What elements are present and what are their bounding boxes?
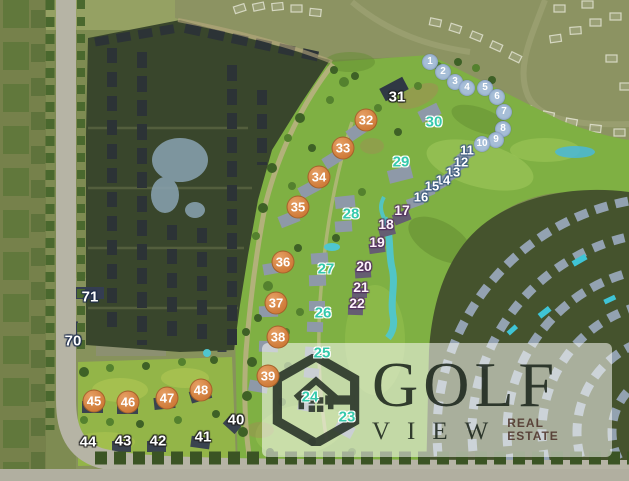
lot-marker-23[interactable]: 23: [339, 410, 356, 425]
lot-marker-19[interactable]: 19: [369, 235, 385, 249]
lot-marker-30[interactable]: 30: [426, 115, 443, 130]
lot-marker-7[interactable]: 7: [496, 104, 512, 120]
lot-marker-34[interactable]: 34: [308, 166, 331, 189]
lot-marker-70[interactable]: 70: [65, 334, 82, 349]
lot-marker-17[interactable]: 17: [394, 203, 410, 217]
lot-marker-21[interactable]: 21: [353, 280, 369, 294]
lot-marker-43[interactable]: 43: [115, 434, 132, 449]
lot-marker-40[interactable]: 40: [228, 413, 245, 428]
lot-marker-36[interactable]: 36: [272, 251, 295, 274]
lot-marker-39[interactable]: 39: [257, 365, 280, 388]
marker-layer: 1234567891011121314151617181920212223242…: [0, 0, 629, 481]
lot-marker-9[interactable]: 9: [488, 132, 504, 148]
lot-marker-29[interactable]: 29: [393, 155, 410, 170]
lot-marker-37[interactable]: 37: [265, 292, 288, 315]
lot-marker-25[interactable]: 25: [314, 346, 331, 361]
lot-marker-26[interactable]: 26: [315, 306, 332, 321]
lot-marker-10[interactable]: 10: [474, 136, 490, 152]
lot-marker-47[interactable]: 47: [156, 387, 179, 410]
lot-marker-18[interactable]: 18: [378, 217, 394, 231]
lot-marker-28[interactable]: 28: [343, 207, 360, 222]
lot-marker-41[interactable]: 41: [195, 430, 212, 445]
masterplan-map[interactable]: 1234567891011121314151617181920212223242…: [0, 0, 629, 481]
lot-marker-24[interactable]: 24: [302, 390, 319, 405]
lot-marker-35[interactable]: 35: [287, 196, 310, 219]
lot-marker-6[interactable]: 6: [489, 89, 505, 105]
lot-marker-42[interactable]: 42: [150, 434, 167, 449]
lot-marker-33[interactable]: 33: [332, 137, 355, 160]
lot-marker-22[interactable]: 22: [349, 296, 365, 310]
lot-marker-27[interactable]: 27: [318, 262, 335, 277]
lot-marker-46[interactable]: 46: [117, 391, 140, 414]
lot-marker-16[interactable]: 16: [414, 191, 428, 204]
lot-marker-44[interactable]: 44: [80, 435, 97, 450]
lot-marker-31[interactable]: 31: [389, 90, 406, 105]
lot-marker-48[interactable]: 48: [190, 379, 213, 402]
lot-marker-45[interactable]: 45: [83, 390, 106, 413]
lot-marker-38[interactable]: 38: [267, 326, 290, 349]
lot-marker-4[interactable]: 4: [459, 80, 475, 96]
lot-marker-71[interactable]: 71: [82, 290, 99, 305]
lot-marker-32[interactable]: 32: [355, 109, 378, 132]
lot-marker-20[interactable]: 20: [356, 259, 372, 273]
